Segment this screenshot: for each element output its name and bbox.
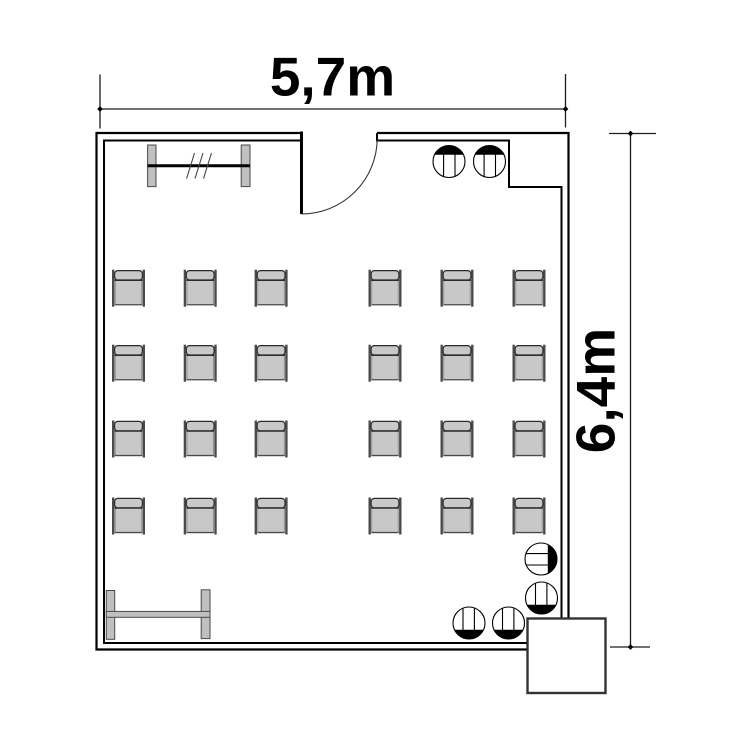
svg-text:6,4m: 6,4m	[565, 328, 627, 453]
svg-text:5,7m: 5,7m	[270, 46, 395, 108]
